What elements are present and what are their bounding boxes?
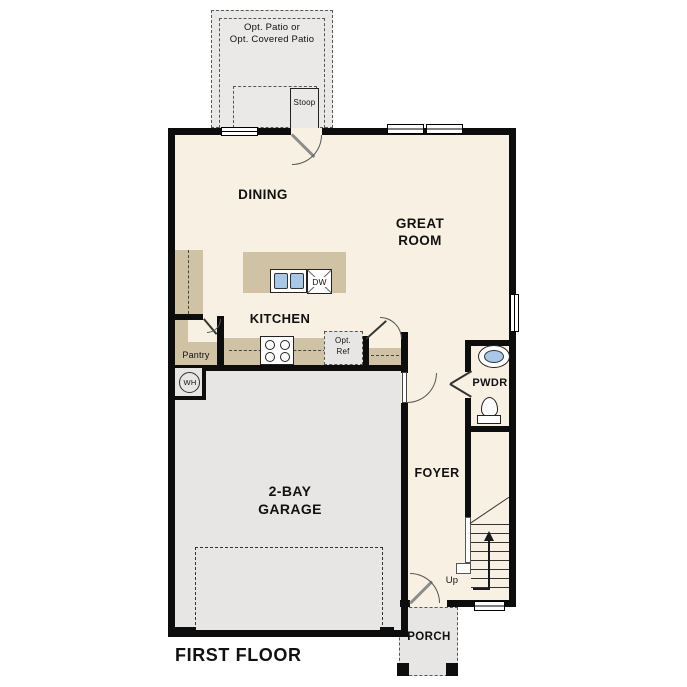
water-heater-label: WH xyxy=(179,378,201,387)
stair-up-arrow-icon xyxy=(484,531,494,541)
porch-post-left xyxy=(397,663,409,676)
wall-garage-left xyxy=(168,365,175,637)
opt-refrigerator: Opt. Ref xyxy=(324,331,363,365)
dishwasher-label: DW xyxy=(310,277,329,287)
closet-shelf xyxy=(369,348,401,365)
garage-corner-post-left xyxy=(170,627,196,637)
stove-burner xyxy=(280,352,290,362)
wall-closet-left xyxy=(363,336,369,365)
wall-left-upper xyxy=(168,128,175,371)
stoop-label: Stoop xyxy=(288,98,321,107)
wall-pwdr-left-upper xyxy=(465,340,471,372)
wall-pantry-top xyxy=(175,314,203,320)
wall-garage-bottom xyxy=(168,630,408,637)
plan-title: FIRST FLOOR xyxy=(175,644,395,667)
opt-patio-label-line2: Opt. Covered Patio xyxy=(211,34,333,45)
kitchen-sink-basin-left xyxy=(274,273,288,289)
stair-tread xyxy=(471,560,509,561)
toilet-tank xyxy=(477,415,501,424)
porch-post-right xyxy=(446,663,458,676)
stove-burner xyxy=(280,340,290,350)
foyer-label: FOYER xyxy=(408,466,466,482)
stair-tread xyxy=(471,542,509,543)
great-room-label-line2: ROOM xyxy=(378,233,462,250)
closet-shelf-dash xyxy=(371,355,399,356)
pwdr-sink-basin xyxy=(484,350,504,363)
toilet-bowl xyxy=(481,397,498,417)
great-room-window-top-left xyxy=(387,124,424,134)
stair-direction-line xyxy=(488,540,490,590)
great-room-label-line1: GREAT xyxy=(378,216,462,233)
garage-label-line1: 2-BAY xyxy=(238,483,342,501)
garage-door-ceiling-outline xyxy=(195,547,383,630)
dishwasher-box: DW xyxy=(307,269,332,294)
first-floor-plan: Opt. Patio or Opt. Covered Patio Stoop P… xyxy=(0,0,687,687)
stairs-up-label: Up xyxy=(441,575,463,586)
stair-landing-window xyxy=(474,601,505,611)
wall-pwdr-bottom xyxy=(465,426,516,432)
stove-burner xyxy=(265,352,275,362)
pwdr-label: PWDR xyxy=(468,377,512,391)
garage-label-line2: GARAGE xyxy=(238,501,342,519)
stove-burner xyxy=(265,340,275,350)
stove xyxy=(260,336,294,365)
dining-label: DINING xyxy=(218,187,308,204)
stair-first-step xyxy=(456,563,471,574)
stair-tread xyxy=(471,569,509,570)
great-room-window-top-right xyxy=(426,124,463,134)
stoop-area xyxy=(290,88,319,128)
kitchen-left-counter-dash xyxy=(188,250,189,314)
opt-patio-label-line1: Opt. Patio or xyxy=(211,22,333,33)
dining-window xyxy=(221,127,258,136)
garage-corner-post-right xyxy=(380,627,394,637)
pantry-label: Pantry xyxy=(176,350,216,360)
kitchen-left-counter xyxy=(175,250,203,314)
opt-ref-label-line2: Ref xyxy=(325,347,361,356)
porch-label: PORCH xyxy=(403,630,455,644)
stair-tread xyxy=(471,578,509,579)
kitchen-sink-basin-right xyxy=(290,273,304,289)
kitchen-label: KITCHEN xyxy=(238,311,322,327)
stair-tread xyxy=(471,551,509,552)
wall-right xyxy=(509,128,516,607)
stair-tread xyxy=(471,524,509,525)
rear-door-opening xyxy=(291,128,322,135)
wall-garage-right-upper xyxy=(401,332,408,373)
great-room-window-right xyxy=(510,294,519,332)
opt-ref-label-line1: Opt. xyxy=(325,336,361,345)
